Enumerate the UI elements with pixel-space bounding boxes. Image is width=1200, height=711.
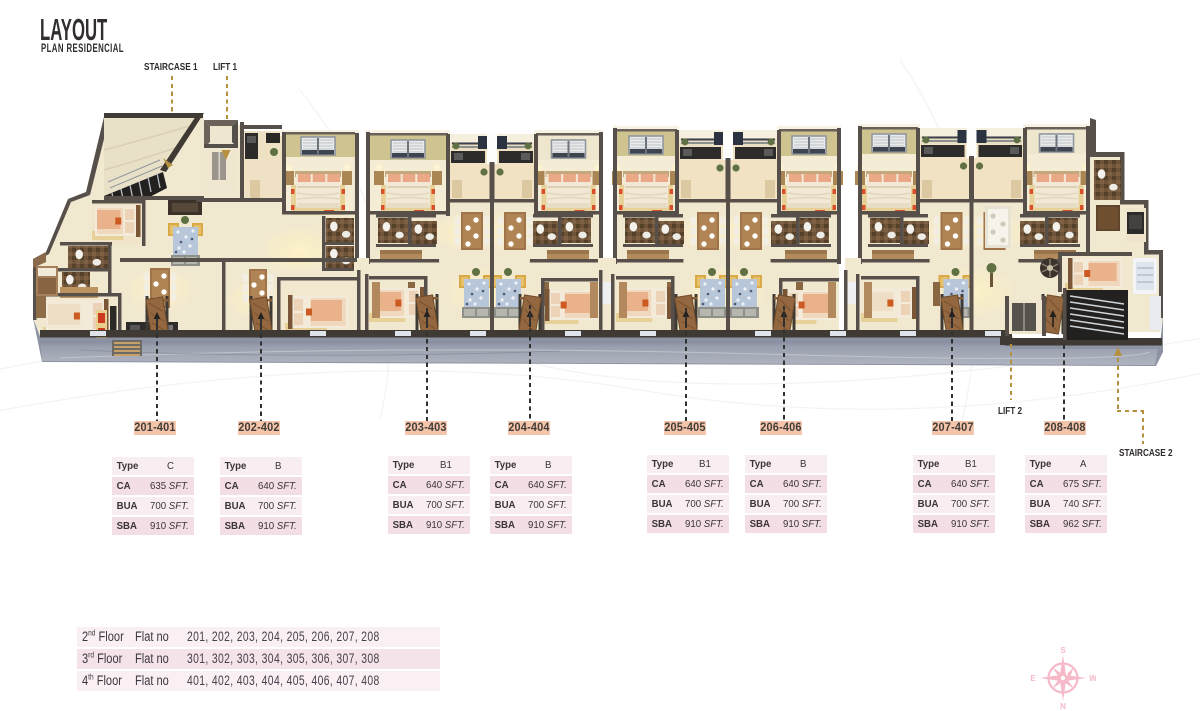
svg-text:W: W xyxy=(1089,674,1096,683)
svg-text:S: S xyxy=(1060,646,1066,655)
svg-text:E: E xyxy=(1030,674,1036,683)
svg-text:N: N xyxy=(1060,702,1066,711)
